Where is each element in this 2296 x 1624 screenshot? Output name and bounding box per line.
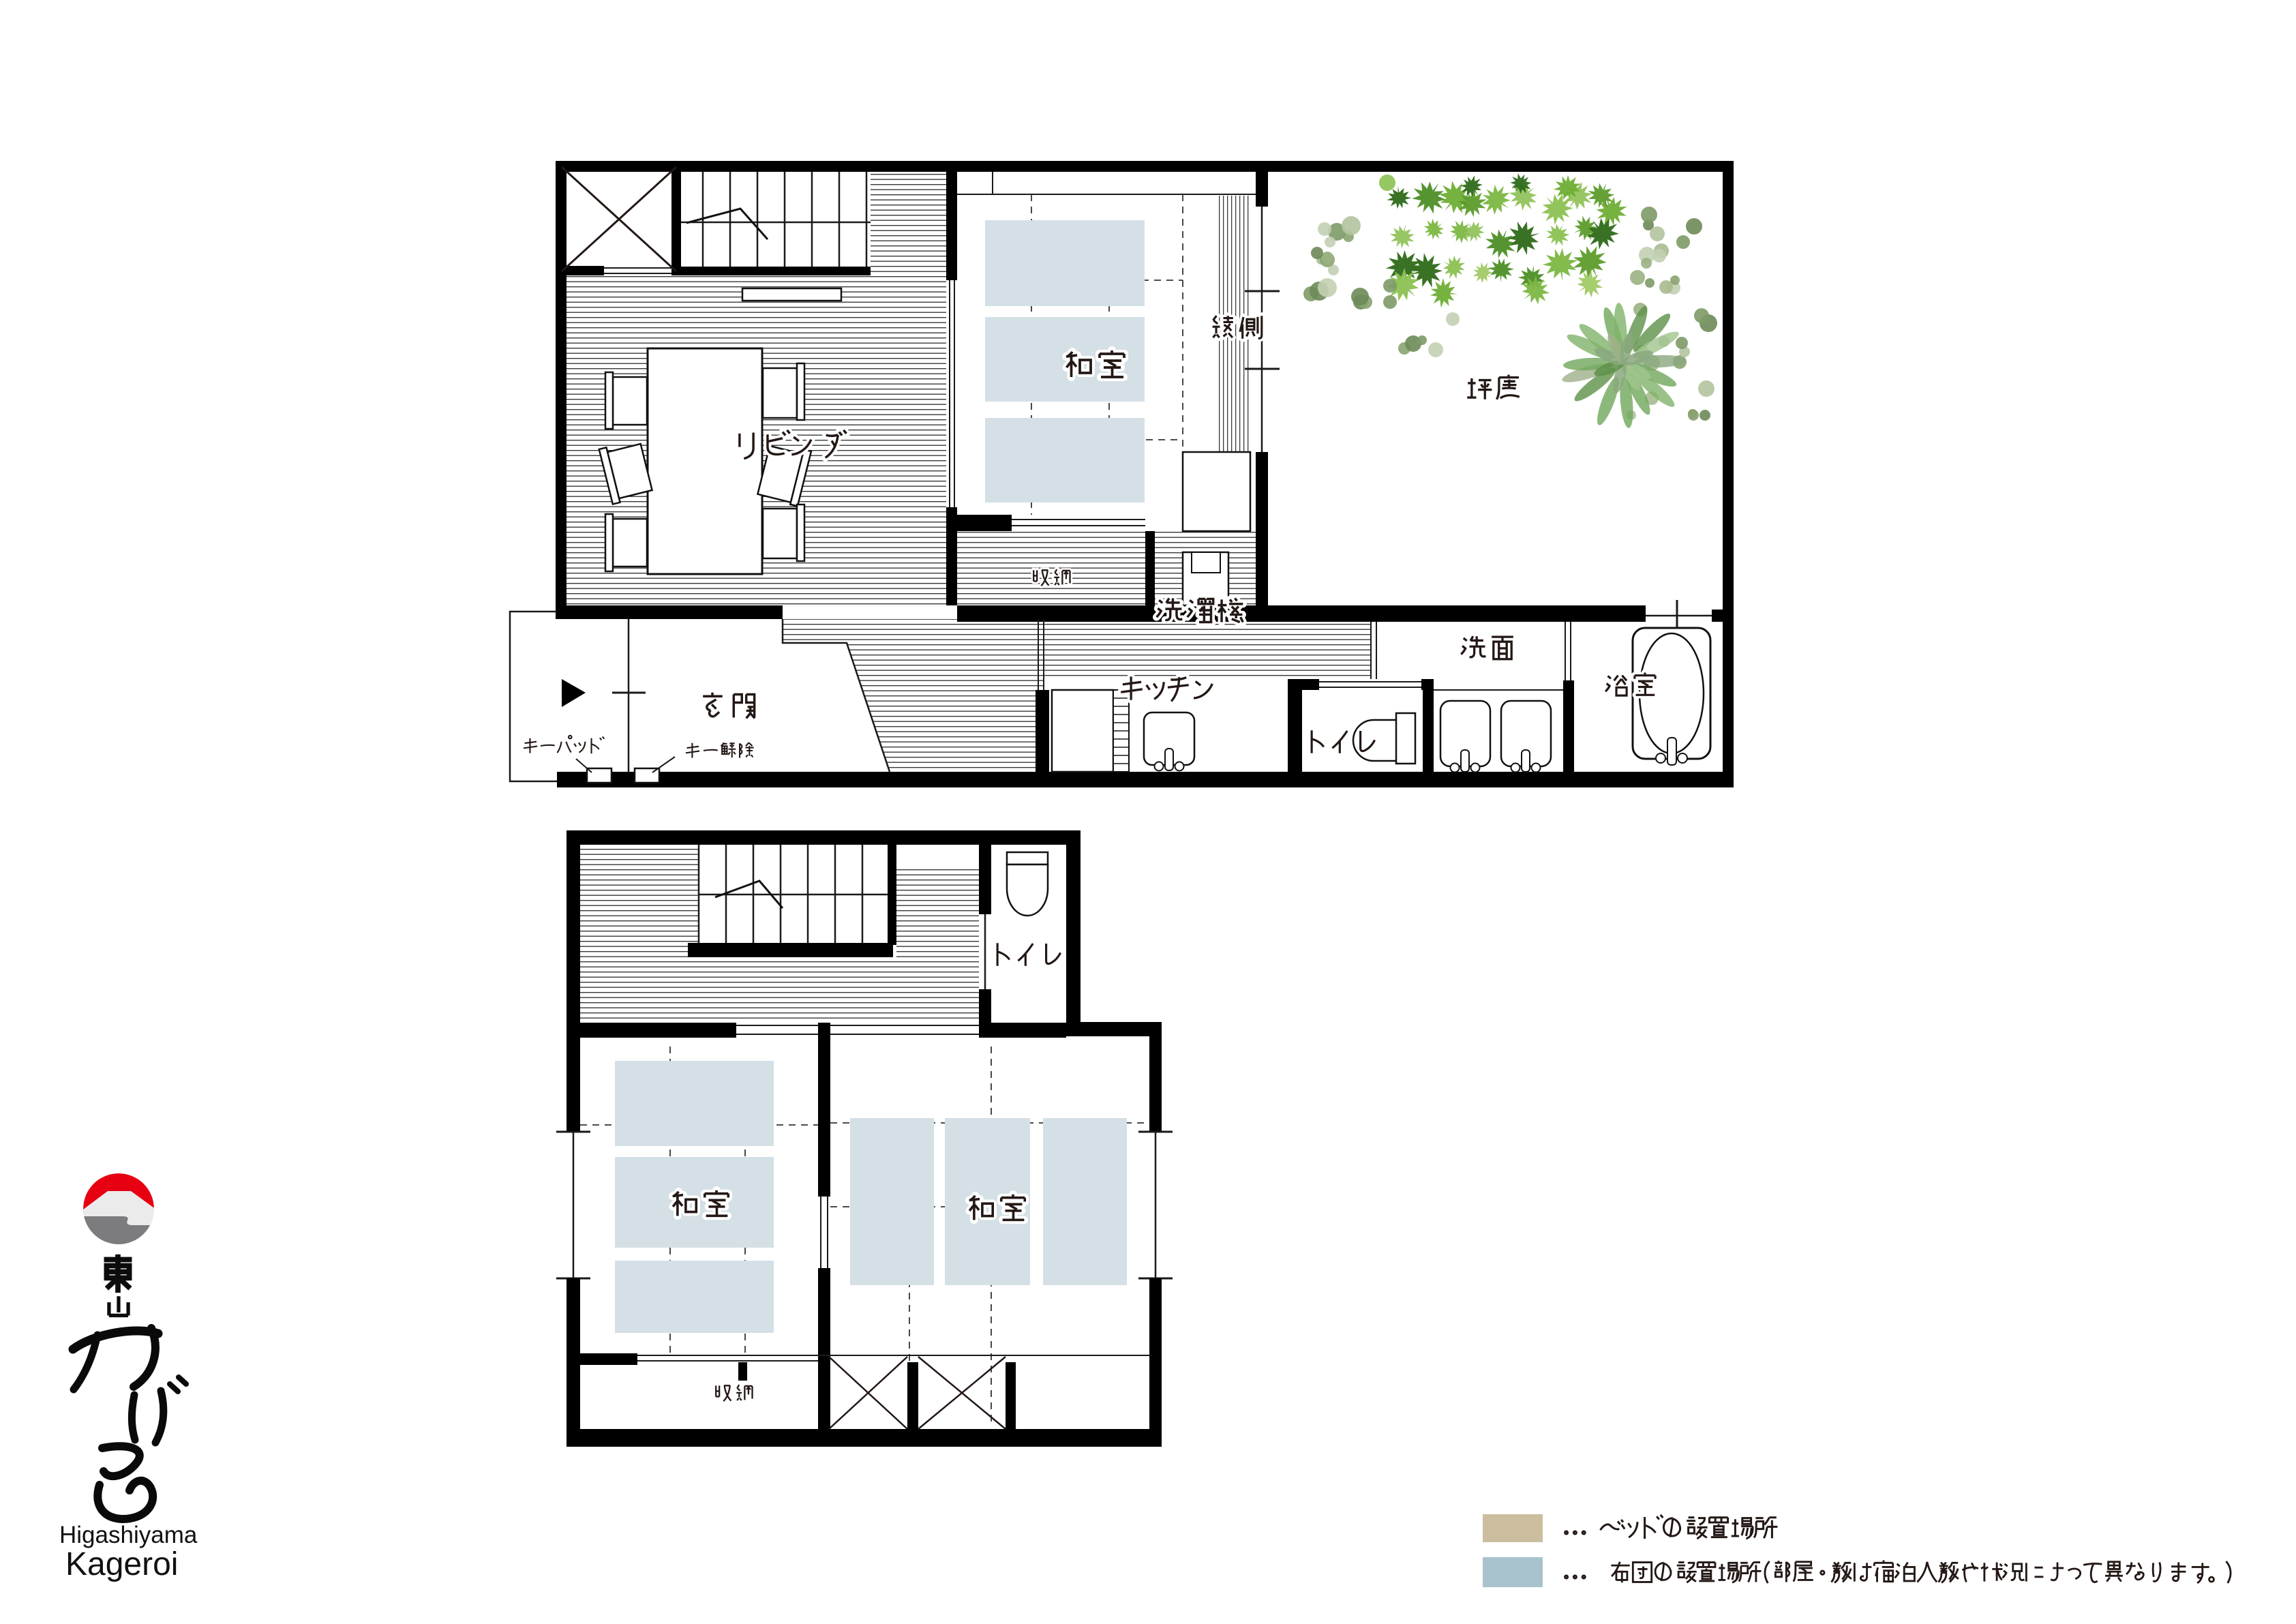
svg-text:Kageroi: Kageroi [65, 1546, 178, 1582]
svg-text:Higashiyama: Higashiyama [59, 1522, 198, 1548]
